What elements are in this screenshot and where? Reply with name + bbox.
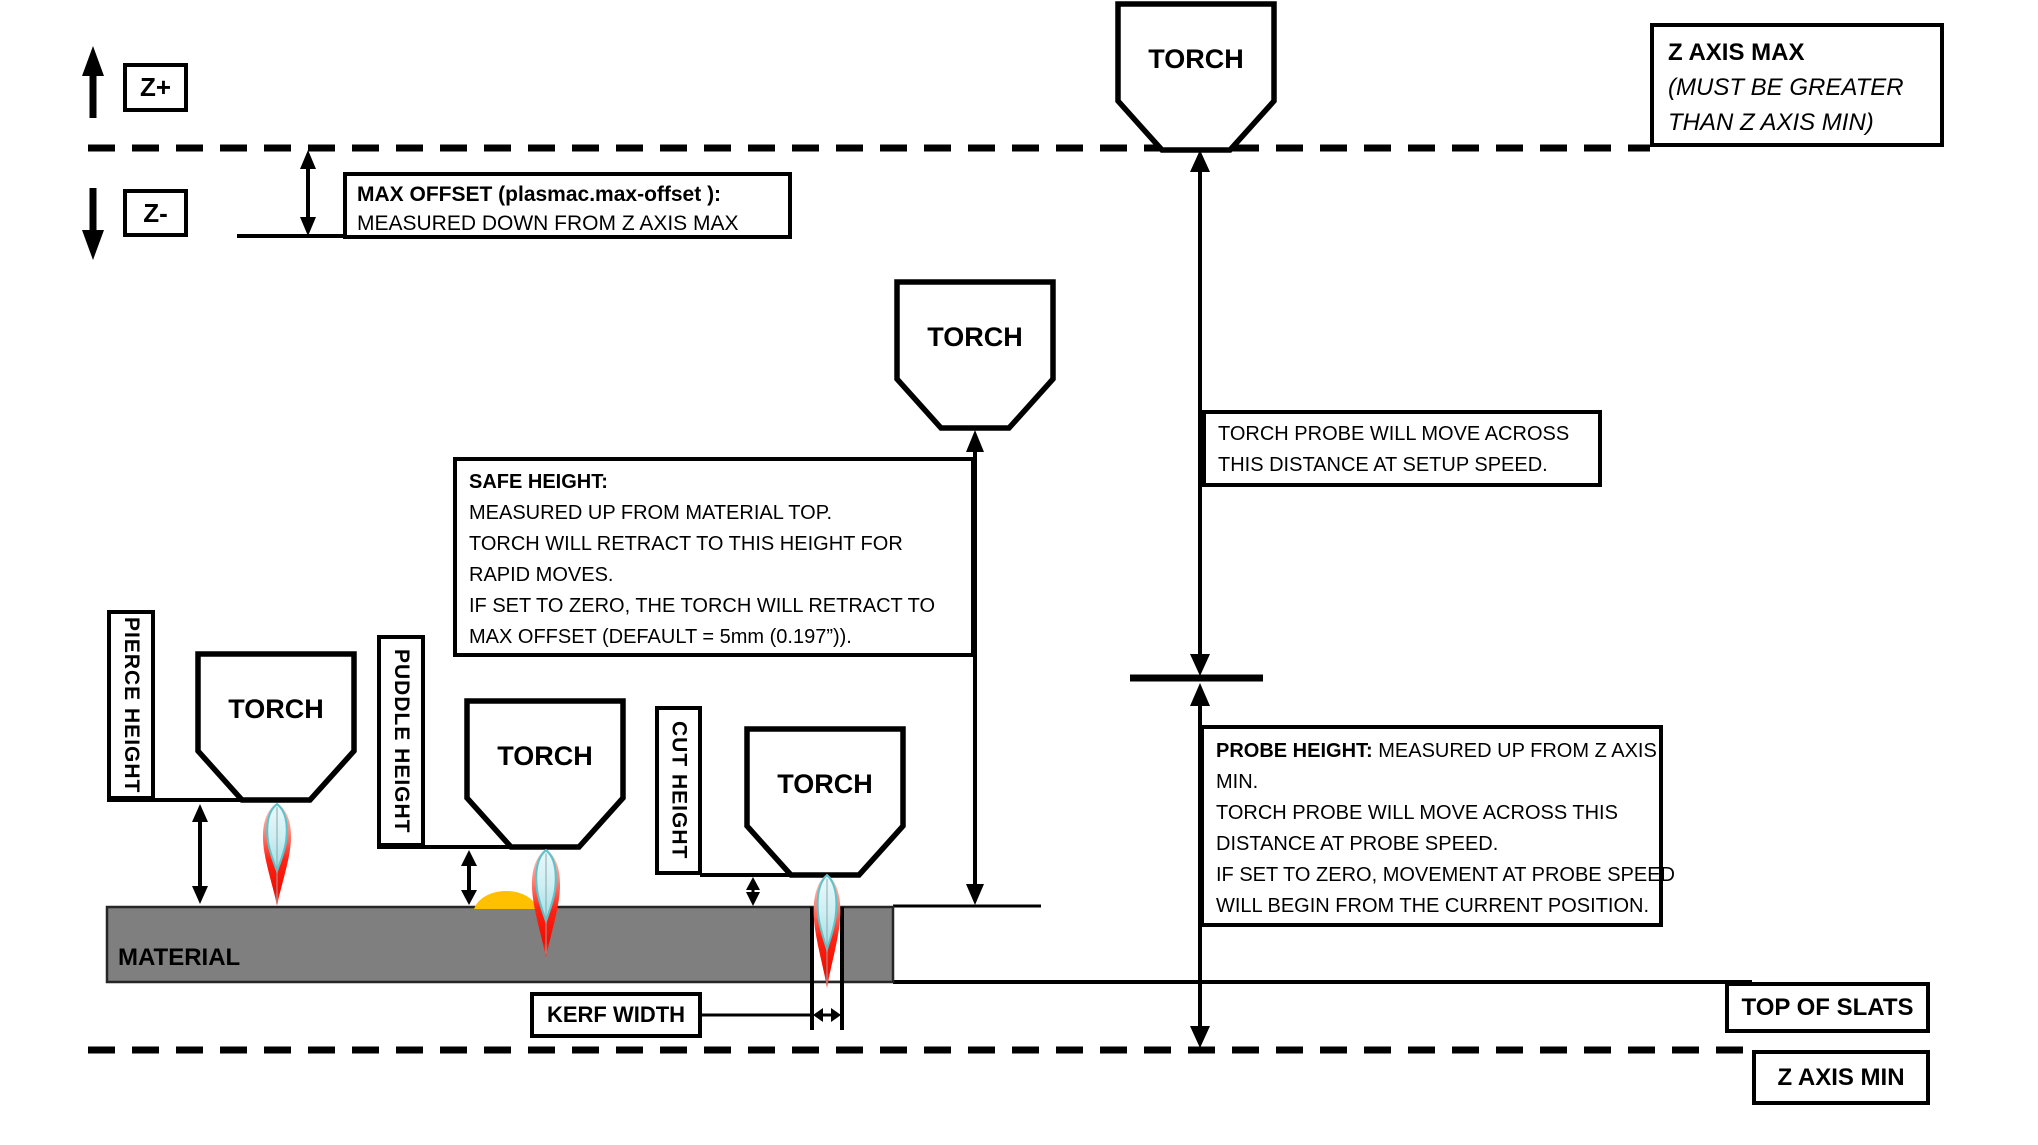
probe-height-line: DISTANCE AT PROBE SPEED.	[1216, 829, 1647, 860]
torch-cut-label: TORCH	[747, 769, 903, 800]
torch-pierce-label: TORCH	[198, 694, 354, 725]
torch-shape-cut	[747, 729, 903, 875]
safe-height-note: SAFE HEIGHT: MEASURED UP FROM MATERIAL T…	[453, 457, 975, 657]
z-axis-max-title: Z AXIS MAX	[1668, 35, 1926, 70]
z-plus-arrow-icon	[82, 46, 104, 118]
probe-height-note: PROBE HEIGHT: MEASURED UP FROM Z AXIS MI…	[1200, 725, 1663, 927]
probe-height-line: TORCH PROBE WILL MOVE ACROSS THIS	[1216, 798, 1647, 829]
top-of-slats-label: TOP OF SLATS	[1725, 982, 1930, 1033]
max-offset-note: MAX OFFSET (plasmac.max-offset ): MEASUR…	[343, 172, 792, 239]
plasma-height-diagram: Z+ Z- MAX OFFSET (plasmac.max-offset ): …	[0, 0, 2038, 1145]
probe-height-title: PROBE HEIGHT:	[1216, 740, 1373, 762]
safe-height-line: IF SET TO ZERO, THE TORCH WILL RETRACT T…	[469, 591, 959, 622]
z-axis-max-note-line2: THAN Z AXIS MIN)	[1668, 105, 1926, 140]
torch-puddle-label: TORCH	[467, 741, 623, 772]
pierce-height-arrow-icon	[192, 804, 208, 904]
torch-probe-note: TORCH PROBE WILL MOVE ACROSS THIS DISTAN…	[1202, 410, 1602, 487]
torch-shape-top	[1118, 4, 1274, 150]
z-axis-min-label: Z AXIS MIN	[1752, 1050, 1930, 1105]
diagram-graphics	[0, 0, 2038, 1145]
z-minus-arrow-icon	[82, 188, 104, 260]
puddle-height-label: PUDDLE HEIGHT	[377, 635, 425, 847]
max-offset-line2: MEASURED DOWN FROM Z AXIS MAX	[357, 210, 778, 238]
z-axis-max-note-line1: (MUST BE GREATER	[1668, 70, 1926, 105]
torch-safe-label: TORCH	[897, 322, 1053, 353]
pierce-height-label: PIERCE HEIGHT	[107, 610, 155, 800]
cut-height-arrow-icon	[746, 877, 760, 906]
kerf-width-label: KERF WIDTH	[530, 992, 702, 1038]
torch-shape-safe	[897, 282, 1053, 428]
torch-top-label: TORCH	[1118, 44, 1274, 75]
probe-height-line: WILL BEGIN FROM THE CURRENT POSITION.	[1216, 891, 1647, 922]
puddle-blob	[474, 891, 538, 909]
pierce-flame-icon	[263, 803, 291, 906]
torch-shape-pierce	[198, 654, 354, 800]
safe-height-title: SAFE HEIGHT:	[469, 467, 959, 498]
puddle-height-arrow-icon	[461, 850, 477, 905]
cut-height-label: CUT HEIGHT	[655, 706, 702, 875]
probe-height-line: MIN.	[1216, 767, 1647, 798]
probe-height-title-rest: MEASURED UP FROM Z AXIS	[1373, 740, 1657, 762]
torch-probe-line1: TORCH PROBE WILL MOVE ACROSS	[1218, 419, 1586, 450]
z-axis-max-note: Z AXIS MAX (MUST BE GREATER THAN Z AXIS …	[1650, 23, 1944, 147]
material-label: MATERIAL	[118, 944, 240, 972]
z-plus-label: Z+	[123, 63, 188, 112]
max-offset-line1: MAX OFFSET (plasmac.max-offset ):	[357, 180, 778, 210]
kerf-width-arrow-icon	[702, 1008, 841, 1022]
safe-height-line: MEASURED UP FROM MATERIAL TOP.	[469, 498, 959, 529]
probe-height-line: IF SET TO ZERO, MOVEMENT AT PROBE SPEED	[1216, 860, 1647, 891]
torch-shape-puddle	[467, 701, 623, 847]
safe-height-line: TORCH WILL RETRACT TO THIS HEIGHT FOR	[469, 529, 959, 560]
safe-height-line: RAPID MOVES.	[469, 560, 959, 591]
safe-height-line: MAX OFFSET (DEFAULT = 5mm (0.197”)).	[469, 622, 959, 653]
torch-probe-line2: THIS DISTANCE AT SETUP SPEED.	[1218, 450, 1586, 481]
z-minus-label: Z-	[123, 189, 188, 237]
